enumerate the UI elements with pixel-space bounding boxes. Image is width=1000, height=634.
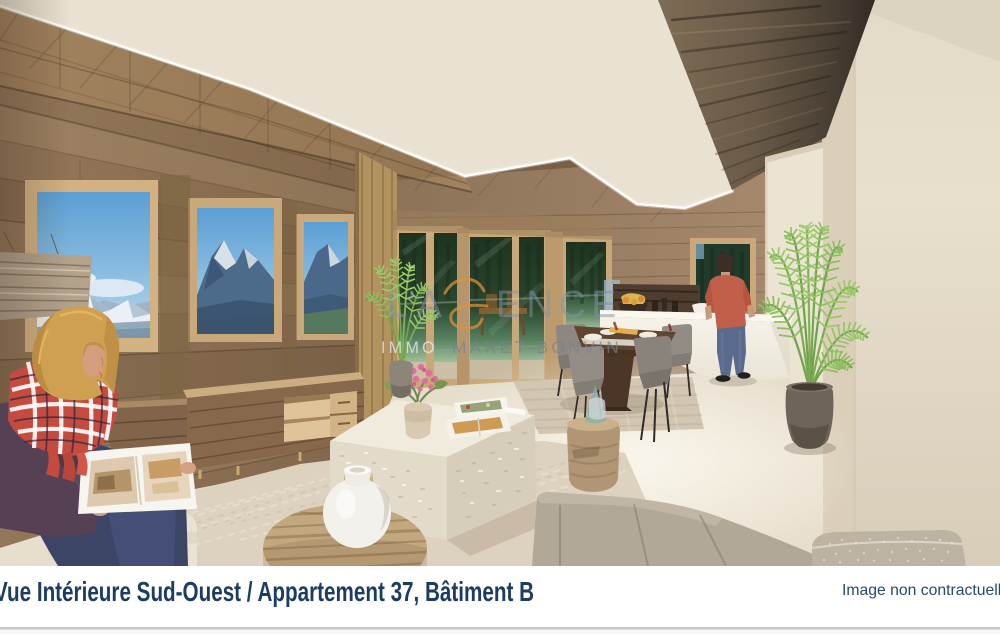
svg-text:L'A: L'A bbox=[386, 284, 444, 326]
svg-text:MARET-BONVIN: MARET-BONVIN bbox=[452, 338, 622, 357]
svg-text:ENCE: ENCE bbox=[496, 284, 622, 326]
svg-text:Vue Intérieure Sud-Ouest / App: Vue Intérieure Sud-Ouest / Appartement 3… bbox=[0, 576, 534, 607]
svg-text:IMMO: IMMO bbox=[381, 338, 438, 357]
svg-text:Image non contractuelle: Image non contractuelle bbox=[842, 582, 1000, 599]
